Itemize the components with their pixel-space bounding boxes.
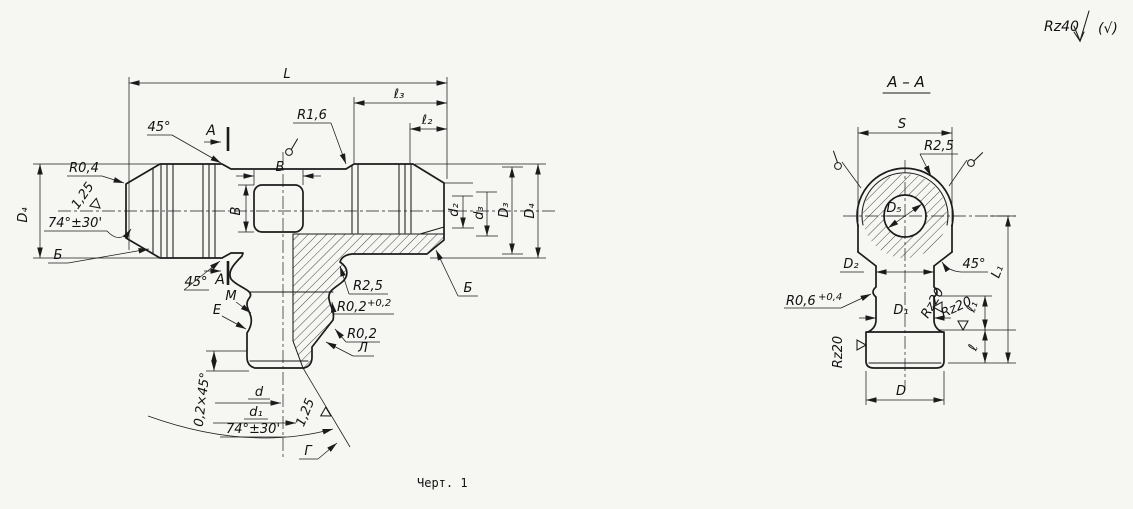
callout-finish125-bottom: 1,25 — [293, 396, 333, 428]
dim-label-S: S — [898, 117, 906, 132]
radius-R04-label: R0,4 — [69, 161, 99, 176]
callout-45-section: 45° — [942, 257, 988, 272]
angle-45-section-label: 45° — [962, 257, 985, 272]
callout-L-surface: Л — [326, 341, 374, 356]
dim-label-D1: D₁ — [893, 303, 908, 318]
callout-R16: R1,6 — [293, 108, 346, 164]
angle-74-bottom-label: 74°±30' — [226, 422, 280, 437]
dim-label-d1: d₁ — [249, 405, 262, 420]
callout-B-cone: Б — [48, 248, 149, 263]
surface-B-left-label: Б — [54, 248, 63, 263]
callout-G-surface: Г — [299, 443, 337, 459]
dim-label-D2: D₂ — [843, 257, 858, 272]
body-outline — [126, 164, 444, 368]
angle-74-left-label: 74°±30' — [48, 216, 102, 231]
dim-B-height: В — [229, 185, 254, 232]
dim-d: d — [215, 385, 281, 403]
callout-R02-tol: R0,2 +0,2 — [332, 298, 394, 315]
angle-45-top-label: 45° — [147, 120, 170, 135]
radius-R06-label: R0,6 — [786, 294, 816, 309]
dim-L1: L₁ — [989, 216, 1016, 363]
polish-mark-icon — [826, 151, 846, 171]
polish-mark-icon — [286, 139, 298, 155]
roughness-triangle-icon — [90, 198, 103, 211]
dim-l2: ℓ₂ — [410, 113, 447, 163]
dim-label-B-width: В — [276, 160, 285, 175]
dim-label-D4-left: D₄ — [16, 207, 31, 223]
radius-R06-sup: +0,4 — [818, 292, 842, 303]
radius-R25-label: R2,5 — [353, 279, 383, 294]
radius-R02-label: R0,2 — [347, 327, 377, 342]
roughness-triangle-icon — [958, 321, 968, 330]
dim-label-B-height: В — [229, 206, 244, 215]
rz20-marks: Rz20 Rz20 Rz20 — [831, 285, 974, 368]
polish-mark-icon — [967, 150, 983, 169]
dim-label-l1: ℓ₁ — [964, 299, 982, 315]
section-plane-a-top: A — [204, 123, 228, 151]
section-view-a-a: А – А S — [784, 73, 1016, 405]
angle-45-branch-label: 45° — [184, 275, 207, 290]
radius-R16-label: R1,6 — [297, 108, 327, 123]
callout-R06-tol: R0,6 +0,4 — [784, 292, 871, 309]
general-roughness-note: Rz40 (√) — [1044, 11, 1118, 41]
dim-chamfer-02x45: 0,2×45° — [192, 351, 249, 428]
callout-74deg-left: 74°±30' — [44, 216, 131, 238]
socket-recess — [254, 185, 303, 232]
dim-label-D3: D₃ — [497, 202, 512, 217]
rz20-left-label: Rz20 — [831, 336, 846, 368]
dim-D2: D₂ — [840, 257, 934, 272]
dim-label-L1: L₁ — [989, 263, 1007, 280]
callout-finish125-left: 1,25 — [69, 180, 104, 212]
drawing-caption: Черт. 1 — [417, 476, 468, 490]
finish-125-bottom-label: 1,25 — [293, 396, 318, 428]
chamfer-02x45-label: 0,2×45° — [192, 372, 214, 428]
dim-label-l2: ℓ₂ — [421, 113, 433, 128]
section-title-label: А – А — [886, 73, 925, 91]
dim-label-L: L — [283, 67, 290, 82]
dim-label-l3: ℓ₃ — [393, 87, 405, 102]
dim-label-d3: d₃ — [472, 206, 487, 219]
section-label-a-bottom: A — [214, 272, 225, 288]
dim-label-D5: D₅ — [886, 201, 901, 216]
radius-R02-tol-label: R0,2 — [337, 300, 367, 315]
callout-E: Е — [213, 303, 246, 329]
dim-label-D4-right: D₄ — [523, 203, 538, 219]
roughness-triangle-icon — [321, 407, 334, 420]
roughness-triangle-icon — [857, 340, 866, 350]
surface-G-label: Г — [304, 444, 313, 459]
surface-M-label: М — [225, 289, 236, 304]
dim-d1: d₁ — [213, 405, 296, 423]
dim-B-width: В — [236, 160, 321, 185]
section-label-a-top: A — [205, 123, 216, 139]
dim-label-d: d — [255, 385, 264, 400]
surface-L-label: Л — [357, 341, 368, 356]
dim-l3: ℓ₃ — [354, 87, 447, 163]
dim-D5: D₅ — [883, 201, 922, 228]
callout-B-right: Б — [436, 250, 478, 296]
surface-B-right-label: Б — [464, 281, 473, 296]
surface-E-label: Е — [213, 303, 222, 318]
dim-l: ℓ — [948, 330, 1016, 363]
callout-R02: R0,2 — [335, 327, 380, 342]
radius-R02-tol-sup: +0,2 — [367, 298, 391, 309]
drawing-sheet: A A L ℓ₃ ℓ₂ D₄ — [0, 0, 1133, 509]
main-view: A A L ℓ₃ ℓ₂ D₄ — [16, 67, 556, 459]
alt-roughness-label: (√) — [1098, 21, 1118, 37]
engineering-drawing: A A L ℓ₃ ℓ₂ D₄ — [0, 0, 1133, 509]
dim-label-l: ℓ — [965, 343, 981, 354]
finish-125-left-label: 1,25 — [69, 180, 98, 212]
section-plane-a-bottom: A — [204, 261, 228, 288]
radius-R25-section-label: R2,5 — [924, 139, 954, 154]
dim-label-D: D — [896, 384, 906, 399]
dim-label-d2: d₂ — [447, 203, 462, 216]
section-title: А – А — [883, 73, 930, 93]
rz40-label: Rz40 — [1044, 19, 1079, 35]
